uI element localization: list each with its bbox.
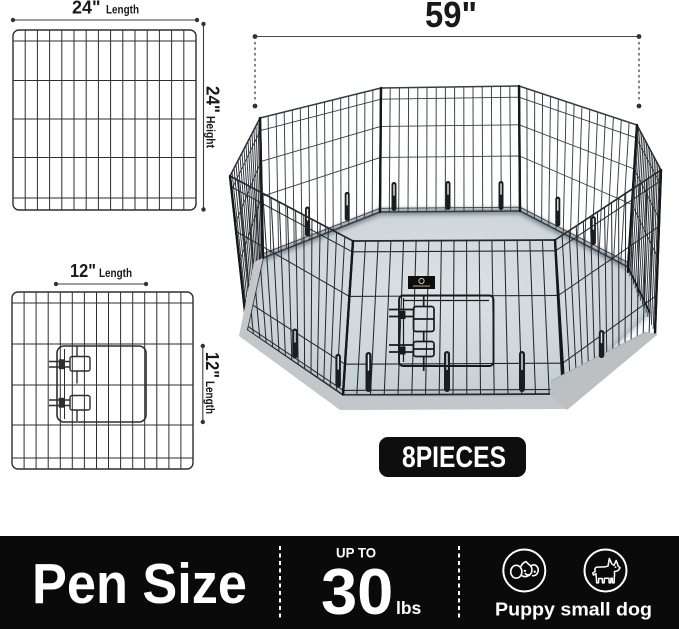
svg-text:Pen Size: Pen Size xyxy=(32,552,247,616)
svg-text:Puppy small dog: Puppy small dog xyxy=(495,599,652,620)
svg-text:Height: Height xyxy=(204,116,216,148)
svg-text:Length: Length xyxy=(203,381,215,414)
svg-text:24": 24" xyxy=(72,0,101,18)
svg-text:59": 59" xyxy=(425,0,477,35)
svg-text:12": 12" xyxy=(70,261,96,281)
svg-text:24": 24" xyxy=(203,86,223,113)
svg-text:8PIECES: 8PIECES xyxy=(402,441,506,474)
svg-text:Length: Length xyxy=(99,268,132,280)
svg-text:30: 30 xyxy=(321,555,393,628)
svg-text:lbs: lbs xyxy=(396,598,422,618)
svg-text:12": 12" xyxy=(202,352,222,378)
svg-text:Length: Length xyxy=(106,5,139,17)
